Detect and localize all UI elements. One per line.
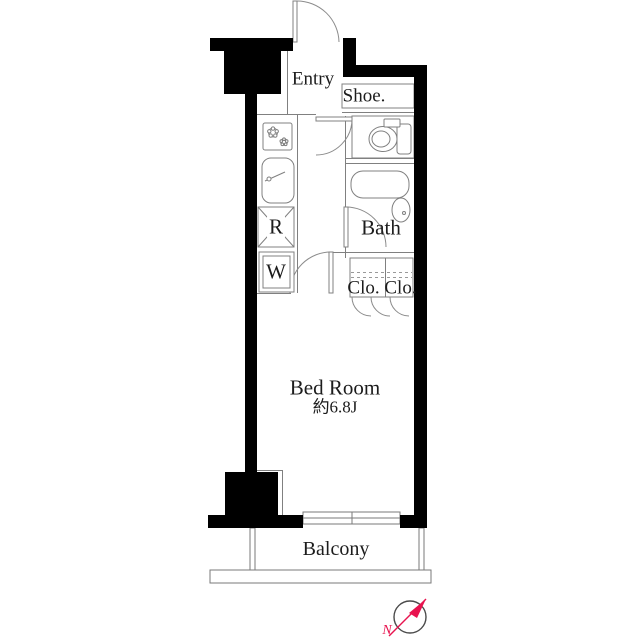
balcony-divider-right (419, 528, 424, 570)
closet-folding-door-arc (371, 297, 390, 316)
toilet-icon (369, 119, 411, 154)
balcony-slab (210, 570, 431, 583)
washer-label: W (264, 262, 288, 283)
bath-label: Bath (361, 218, 401, 239)
toilet-door-arc (316, 119, 352, 155)
bedroom-label: Bed Room (290, 378, 380, 399)
compass-north-label: N (382, 624, 391, 638)
refrigerator-label: R (267, 217, 285, 238)
balcony-label: Balcony (303, 539, 370, 559)
entry-door-arc (297, 1, 339, 42)
balcony-divider-left (250, 528, 255, 570)
bedroom-area-label: 約6.8J (313, 399, 358, 416)
north-compass-icon (389, 599, 426, 636)
bathtub-icon (351, 171, 409, 198)
kitchen-sink-icon (262, 158, 294, 203)
entry-label: Entry (292, 70, 334, 89)
floor-plan: Entry Shoe. R W Bath Clo. Clo. Bed Room … (0, 0, 640, 640)
closet-folding-door-arc (390, 297, 409, 316)
closet-folding-door-arc (352, 297, 371, 316)
toilet-door-leaf (316, 117, 352, 121)
bedroom-door-leaf (329, 252, 333, 293)
stove-burners-icon (263, 123, 292, 150)
bath-door-leaf (344, 207, 348, 247)
bedroom-door-arc (290, 252, 331, 293)
closet-label: Clo. Clo. (347, 279, 416, 298)
entry-door-leaf (293, 1, 297, 42)
shoe-closet-label: Shoe. (343, 87, 386, 106)
